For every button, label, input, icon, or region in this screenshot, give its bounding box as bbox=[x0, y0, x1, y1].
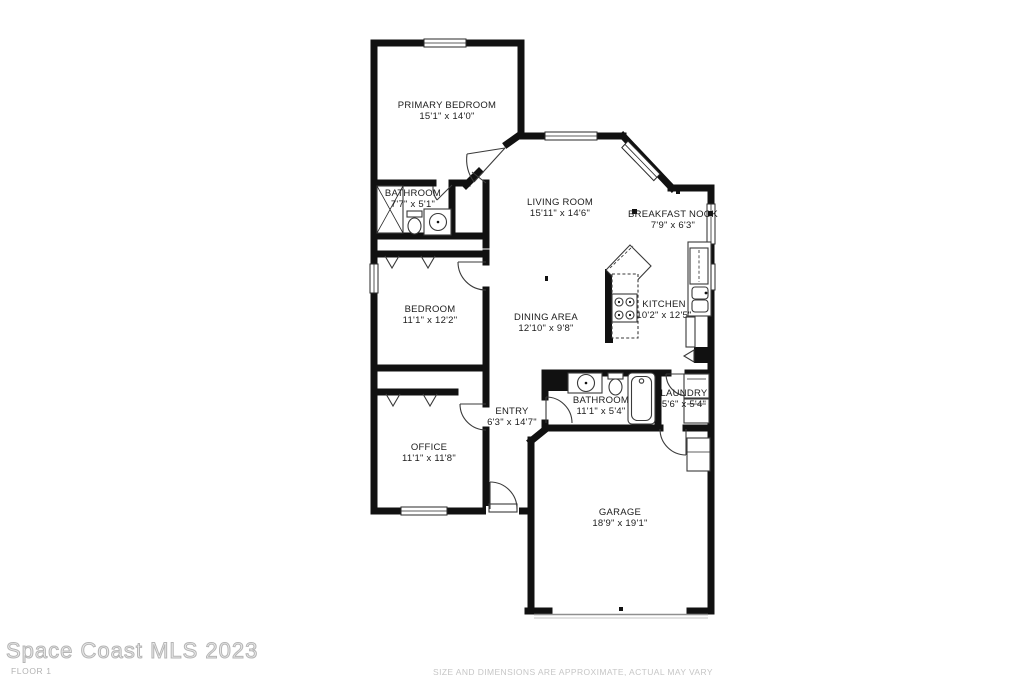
room-name: BATHROOM bbox=[573, 395, 629, 406]
room-name: PRIMARY BEDROOM bbox=[398, 100, 496, 111]
garage-entry-door-icon bbox=[660, 429, 686, 455]
room-label-garage: GARAGE 18'9" x 19'1" bbox=[592, 507, 647, 529]
kitchen-fixtures bbox=[606, 242, 711, 347]
room-label-dining-area: DINING AREA 12'10" x 9'8" bbox=[514, 312, 578, 334]
hanger-icon bbox=[385, 256, 399, 268]
room-label-bathroom-2: BATHROOM 11'1" x 5'4" bbox=[573, 395, 629, 417]
room-label-bedroom: BEDROOM 11'1" x 12'2" bbox=[403, 304, 458, 326]
room-dims: 5'6" x 5'4" bbox=[661, 399, 708, 410]
window-icon bbox=[424, 39, 466, 47]
closet-hangers bbox=[385, 256, 437, 406]
sink-vanity-icon bbox=[424, 209, 451, 235]
water-heater-icon bbox=[687, 438, 710, 471]
pantry-wall bbox=[694, 347, 711, 363]
room-name: DINING AREA bbox=[514, 312, 578, 323]
room-name: OFFICE bbox=[402, 442, 456, 453]
room-label-bathroom-primary: BATHROOM 7'7" x 5'1" bbox=[385, 188, 441, 210]
floor-plan-drawing bbox=[0, 0, 1024, 683]
toilet-icon bbox=[608, 373, 623, 395]
bathroom2-shower-block bbox=[546, 374, 568, 391]
refrigerator-icon bbox=[690, 248, 708, 284]
room-dims: 7'7" x 5'1" bbox=[385, 199, 441, 210]
room-dims: 15'1" x 14'0" bbox=[398, 111, 496, 122]
room-dims: 15'11" x 14'6" bbox=[527, 208, 593, 219]
room-dims: 11'1" x 12'2" bbox=[403, 315, 458, 326]
room-label-breakfast-nook: BREAKFAST NOOK 7'9" x 6'3" bbox=[628, 209, 718, 231]
room-name: BATHROOM bbox=[385, 188, 441, 199]
room-dims: 11'1" x 11'8" bbox=[402, 453, 456, 464]
room-name: LIVING ROOM bbox=[527, 197, 593, 208]
garage-fixtures bbox=[687, 438, 710, 471]
garage-door-icon bbox=[534, 615, 708, 619]
toilet-icon bbox=[407, 211, 422, 234]
bathroom2-door-icon bbox=[546, 397, 572, 423]
room-label-office: OFFICE 11'1" x 11'8" bbox=[402, 442, 456, 464]
office-door-icon bbox=[460, 404, 486, 430]
room-dims: 11'1" x 5'4" bbox=[573, 406, 629, 417]
room-label-primary-bedroom: PRIMARY BEDROOM 15'1" x 14'0" bbox=[398, 100, 496, 122]
dishwasher-icon bbox=[686, 317, 695, 347]
hanger-icon bbox=[423, 394, 437, 406]
room-name: BEDROOM bbox=[403, 304, 458, 315]
room-name: KITCHEN bbox=[636, 299, 691, 310]
room-name: LAUNDRY bbox=[661, 388, 708, 399]
sink-vanity-icon bbox=[568, 373, 602, 393]
window-icon bbox=[401, 507, 447, 515]
room-label-entry: ENTRY 6'3" x 14'7" bbox=[487, 406, 537, 428]
room-label-laundry: LAUNDRY 5'6" x 5'4" bbox=[661, 388, 708, 410]
room-dims: 10'2" x 12'5" bbox=[636, 310, 691, 321]
bathtub-icon bbox=[628, 373, 655, 424]
room-name: BREAKFAST NOOK bbox=[628, 209, 718, 220]
range-stove-icon bbox=[612, 294, 637, 322]
room-label-living-room: LIVING ROOM 15'11" x 14'6" bbox=[527, 197, 593, 219]
room-dims: 7'9" x 6'3" bbox=[628, 220, 718, 231]
window-icon bbox=[370, 264, 378, 293]
disclaimer-text: SIZE AND DIMENSIONS ARE APPROXIMATE, ACT… bbox=[433, 667, 713, 677]
hanger-icon bbox=[386, 394, 400, 406]
floor-label: FLOOR 1 bbox=[11, 666, 52, 676]
room-dims: 18'9" x 19'1" bbox=[592, 518, 647, 529]
room-name: ENTRY bbox=[487, 406, 537, 417]
room-name: GARAGE bbox=[592, 507, 647, 518]
kitchen-sink-icon bbox=[692, 287, 708, 312]
window-icon bbox=[622, 141, 660, 181]
room-dims: 6'3" x 14'7" bbox=[487, 417, 537, 428]
floor-plan-page: PRIMARY BEDROOM 15'1" x 14'0" BATHROOM 7… bbox=[0, 0, 1024, 683]
room-dims: 12'10" x 9'8" bbox=[514, 323, 578, 334]
window-icon bbox=[545, 132, 597, 140]
room-label-kitchen: KITCHEN 10'2" x 12'5" bbox=[636, 299, 691, 321]
mls-watermark: Space Coast MLS 2023 bbox=[6, 638, 258, 664]
pantry-bifold-icon bbox=[684, 350, 694, 362]
hanger-icon bbox=[421, 256, 435, 268]
bedroom-door-icon bbox=[458, 262, 486, 290]
front-door-icon bbox=[486, 482, 519, 515]
